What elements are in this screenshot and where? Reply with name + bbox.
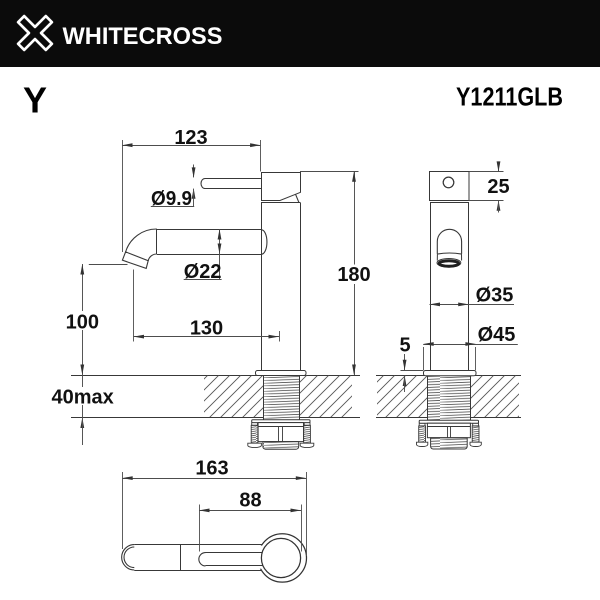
svg-text:123: 123: [174, 127, 207, 149]
svg-text:100: 100: [66, 311, 99, 333]
svg-text:180: 180: [337, 264, 370, 286]
svg-text:163: 163: [195, 458, 228, 480]
svg-text:5: 5: [399, 335, 410, 357]
svg-text:130: 130: [190, 317, 223, 339]
svg-text:88: 88: [239, 490, 261, 512]
svg-text:Ø9.9: Ø9.9: [151, 188, 192, 210]
svg-text:Y1211GLB: Y1211GLB: [456, 82, 563, 112]
svg-text:Ø22: Ø22: [184, 261, 222, 283]
svg-text:Ø45: Ø45: [478, 324, 516, 346]
svg-text:Ø35: Ø35: [476, 284, 514, 306]
svg-text:25: 25: [487, 176, 509, 198]
svg-text:WHITECROSS: WHITECROSS: [63, 23, 223, 50]
svg-text:Y: Y: [23, 80, 47, 121]
svg-text:40max: 40max: [51, 386, 113, 408]
